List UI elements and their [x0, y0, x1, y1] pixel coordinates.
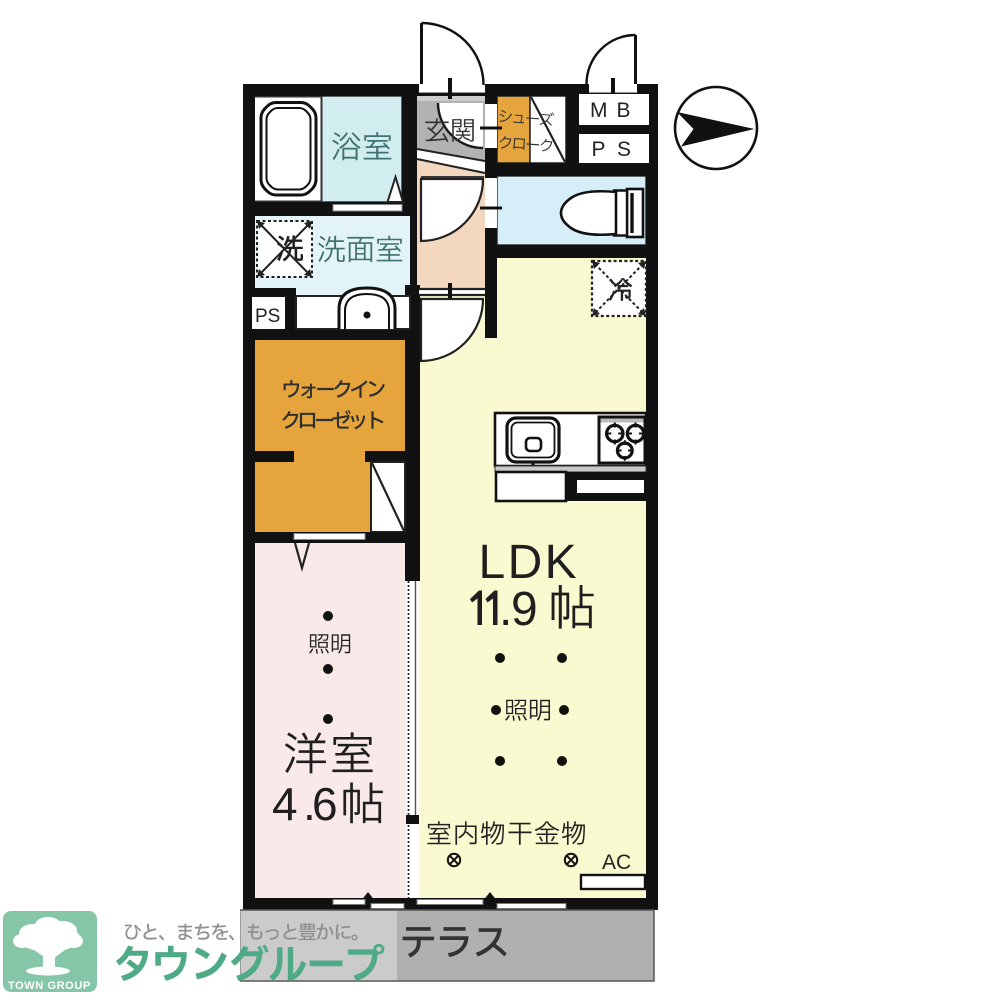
svg-text:.9: .9: [499, 583, 538, 636]
svg-text:LDK: LDK: [479, 536, 580, 589]
svg-text:PS: PS: [255, 306, 280, 327]
svg-text:4.6: 4.6: [272, 778, 338, 830]
svg-text:TOWN GROUP: TOWN GROUP: [8, 980, 91, 992]
svg-text:AC: AC: [602, 851, 631, 874]
